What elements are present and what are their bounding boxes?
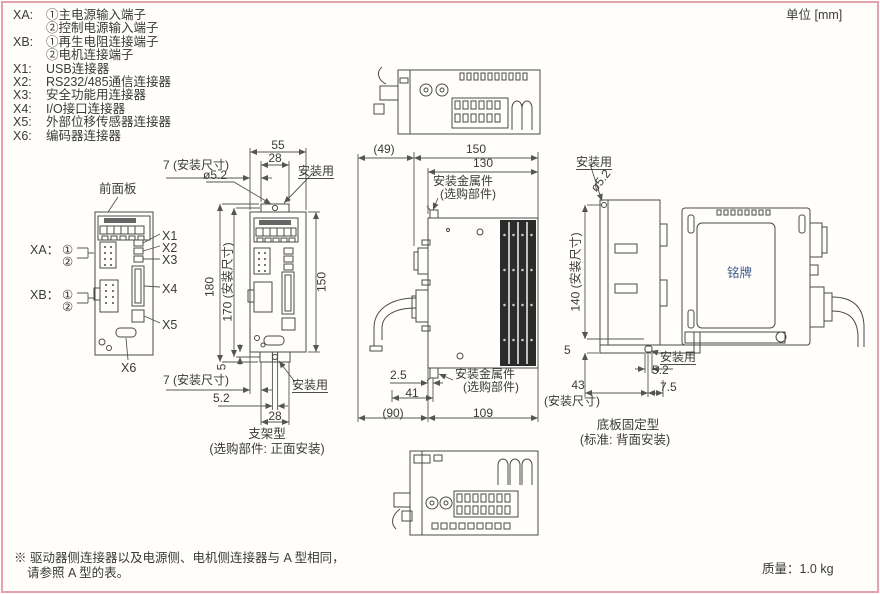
legend-row: ②控制电源输入端子: [13, 22, 171, 35]
legend-row: X6:编码器连接器: [13, 130, 171, 143]
mount-label-bottom: 安装用: [292, 379, 328, 393]
legend-row: ②电机连接端子: [13, 49, 171, 62]
legend-row: X5:外部位移传感器连接器: [13, 116, 171, 129]
legend-text: 安全功能用连接器: [46, 89, 146, 102]
terminal-label-xa: XA：: [30, 244, 59, 258]
legend-text: ②电机连接端子: [46, 49, 134, 62]
legend-key: X4:: [13, 103, 46, 116]
legend-key: [13, 49, 46, 62]
dim-52-base: 5.2: [652, 364, 669, 377]
dim-170: 170 (安装尺寸): [221, 242, 234, 321]
terminal-xa-2: ②: [62, 256, 73, 270]
legend-key: X1:: [13, 63, 46, 76]
bracket-metal-bottom-2: (选购部件): [463, 381, 519, 394]
dim-75: 7.5: [660, 381, 677, 394]
bracket-caption-2: (选购部件: 正面安装): [209, 443, 324, 457]
rear-view-drawing: [665, 195, 875, 370]
dim-130: 130: [473, 157, 493, 170]
terminal-xb-2: ②: [62, 301, 73, 315]
bracket-view-drawing: [160, 138, 355, 468]
footnote-line-1: ※ 驱动器侧连接器以及电源侧、电机侧连接器与 A 型相同，: [14, 552, 345, 566]
bracket-metal-top-2: (选购部件): [440, 188, 496, 201]
dim-150-depth: 150: [466, 143, 486, 156]
terminal-label-xb: XB：: [30, 289, 59, 303]
legend-key: [13, 22, 46, 35]
connector-label-x3: X3: [162, 254, 177, 268]
footnote-line-2: 请参照 A 型的表。: [27, 567, 129, 581]
nameplate-label: 铭牌: [727, 267, 752, 281]
dim-90: (90): [382, 407, 403, 420]
top-view-drawing: [370, 58, 545, 143]
bracket-caption-1: 支架型: [248, 428, 286, 442]
legend-key: XB:: [13, 36, 46, 49]
front-panel-label: 前面板: [99, 183, 137, 197]
connector-legend: XA:①主电源输入端子 ②控制电源输入端子 XB:①再生电阻连接端子 ②电机连接…: [13, 9, 171, 143]
legend-row: X3:安全功能用连接器: [13, 89, 171, 102]
connector-label-x5: X5: [162, 319, 177, 333]
dim-28-bottom: 28: [268, 410, 281, 423]
mount-label-top: 安装用: [298, 165, 334, 179]
dim-25: 2.5: [390, 369, 407, 382]
dim-41: 41: [405, 387, 418, 400]
base-caption-1: 底板固定型: [597, 419, 660, 433]
base-caption-2: (标准: 背面安装): [580, 434, 670, 448]
manual-page: { "page": { "unit_note": "单位 [mm]", "mas…: [0, 0, 880, 594]
unit-note: 单位 [mm]: [786, 9, 842, 23]
dim-7-bottom: 7 (安装尺寸): [163, 374, 229, 387]
dim-180: 180: [203, 277, 216, 297]
dim-hole-52: ø5.2: [203, 169, 227, 182]
dim-43-suffix: (安装尺寸): [544, 395, 600, 408]
legend-text: 外部位移传感器连接器: [46, 116, 171, 129]
dim-52-bottom: 5.2: [213, 392, 230, 405]
dim-28-top: 28: [268, 152, 281, 165]
connector-label-x4: X4: [162, 283, 177, 297]
legend-key: X3:: [13, 89, 46, 102]
dim-140: 140 (安装尺寸): [569, 232, 582, 311]
dim-150-height: 150: [315, 272, 328, 292]
dim-109: 109: [473, 407, 493, 420]
legend-key: X2:: [13, 76, 46, 89]
dim-49: (49): [373, 143, 394, 156]
bottom-view-drawing: [390, 445, 550, 550]
dim-5: 5: [215, 364, 228, 371]
mass-label: 质量：1.0 kg: [762, 563, 834, 577]
legend-text: ②控制电源输入端子: [46, 22, 159, 35]
connector-label-x6: X6: [121, 362, 136, 376]
dim-5-base: 5: [564, 344, 571, 357]
legend-key: XA:: [13, 9, 46, 22]
mount-label-top-base: 安装用: [576, 156, 612, 170]
legend-text: 编码器连接器: [46, 130, 121, 143]
legend-key: X6:: [13, 130, 46, 143]
front-view-drawing: [30, 182, 180, 382]
legend-key: X5:: [13, 116, 46, 129]
dim-43: 43: [571, 379, 584, 392]
